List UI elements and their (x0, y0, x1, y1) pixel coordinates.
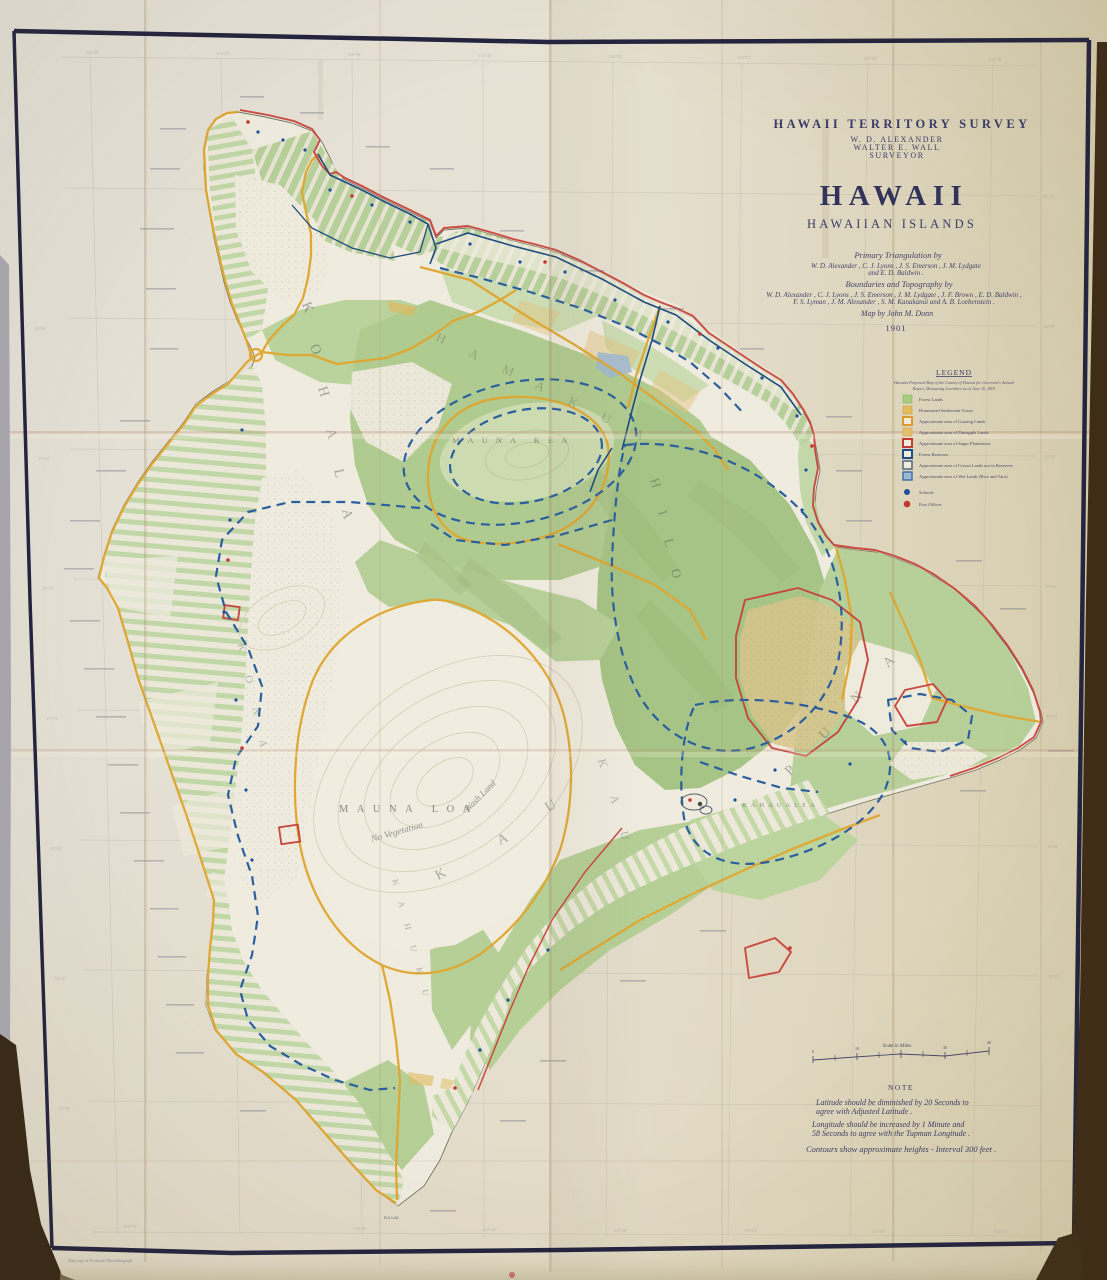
svg-text:LEGEND: LEGEND (936, 368, 972, 377)
svg-text:NOTE: NOTE (888, 1083, 914, 1092)
svg-text:Scale in Miles: Scale in Miles (883, 1044, 912, 1049)
svg-text:Approximate area of Pineapple: Approximate area of Pineapple Lands (919, 430, 989, 435)
svg-text:agree with Adjusted Latitude .: agree with Adjusted Latitude . (816, 1107, 912, 1116)
svg-text:Forest Reserves: Forest Reserves (919, 452, 948, 457)
svg-text:HAWAII: HAWAII (820, 180, 969, 212)
svg-text:Longitude should be increased: Longitude should be increased by 1 Minut… (811, 1120, 965, 1129)
svg-text:SURVEYOR: SURVEYOR (869, 151, 924, 160)
svg-text:Contours show approximate heig: Contours show approximate heights - Inte… (806, 1144, 996, 1154)
svg-text:HAWAIIAN ISLANDS: HAWAIIAN ISLANDS (807, 217, 977, 231)
svg-text:Approximate area of Grazing La: Approximate area of Grazing Lands (919, 419, 986, 424)
svg-text:F. S. Lyman , J. M. Alexander: F. S. Lyman , J. M. Alexander , S. M. Ka… (792, 298, 995, 306)
svg-text:Boundaries and Topography by: Boundaries and Topography by (845, 279, 952, 289)
svg-text:Approximate area of Wet Lands: Approximate area of Wet Lands (Rice and … (919, 474, 1008, 479)
svg-text:Schools: Schools (919, 490, 934, 495)
svg-text:58 Seconds to agree with the T: 58 Seconds to agree with the Tupman Long… (812, 1129, 970, 1138)
svg-text:Map by John M. Donn: Map by John M. Donn (860, 309, 933, 318)
svg-text:Forest Lands: Forest Lands (919, 397, 943, 402)
svg-text:Post Offices: Post Offices (919, 502, 942, 507)
svg-text:Map copy of Territorial Photol: Map copy of Territorial Photolithograph (68, 1258, 132, 1263)
svg-text:30: 30 (943, 1045, 947, 1050)
svg-text:0: 0 (812, 1049, 814, 1054)
svg-text:1901: 1901 (886, 323, 907, 333)
svg-text:and E. D. Baldwin .: and E. D. Baldwin . (868, 269, 924, 277)
svg-text:Hawaiis Proposed Map of the Co: Hawaiis Proposed Map of the County of Ha… (893, 380, 1015, 385)
svg-text:Approximate area of Crown Land: Approximate area of Crown Lands not in R… (919, 463, 1013, 468)
svg-text:Homestead Settlement Tracts: Homestead Settlement Tracts (919, 408, 973, 413)
svg-text:Primary Triangulation by: Primary Triangulation by (853, 250, 942, 260)
svg-text:Latitude should be diminished: Latitude should be diminished by 20 Seco… (815, 1098, 969, 1107)
svg-text:40: 40 (987, 1040, 991, 1045)
svg-text:HAWAII TERRITORY SURVEY: HAWAII TERRITORY SURVEY (774, 117, 1031, 131)
svg-text:Approximate area of Sugar Plan: Approximate area of Sugar Plantations (919, 441, 991, 446)
svg-text:10: 10 (855, 1046, 859, 1051)
